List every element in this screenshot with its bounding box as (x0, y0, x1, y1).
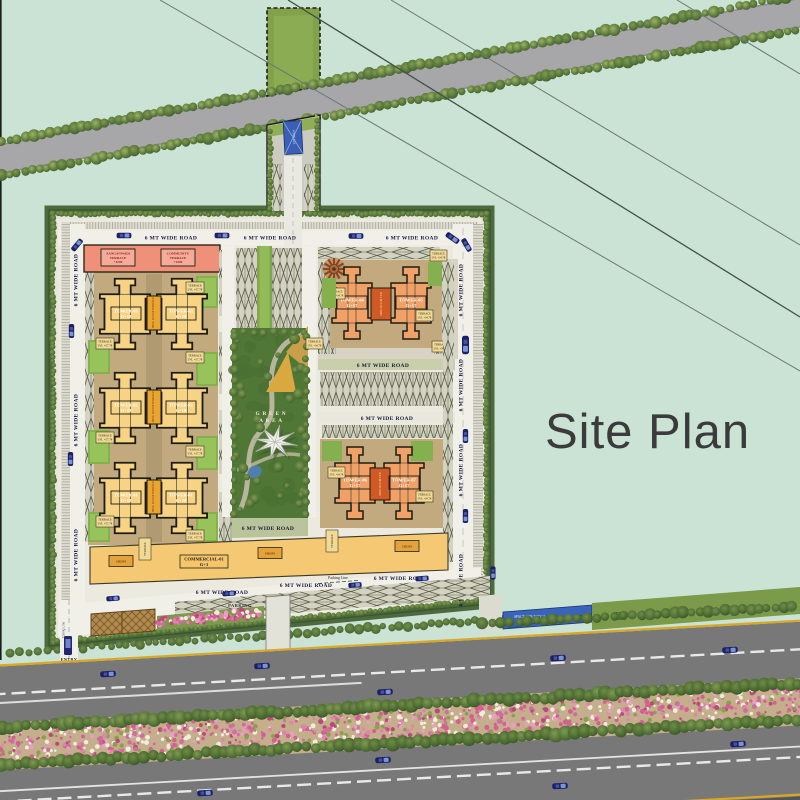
svg-text:MISC ROOM TERRACE: MISC ROOM TERRACE (151, 391, 155, 423)
svg-text:LVL +57.78: LVL +57.78 (188, 452, 203, 456)
svg-text:6 MT WIDE ROAD: 6 MT WIDE ROAD (74, 529, 80, 582)
svg-text:TERRACE: TERRACE (330, 470, 343, 473)
svg-text:6 MT WIDE ROAD: 6 MT WIDE ROAD (196, 590, 249, 596)
svg-text:6 MT WIDE ROAD: 6 MT WIDE ROAD (386, 236, 439, 242)
svg-text:+4200: +4200 (174, 260, 183, 264)
svg-text:SHOPS: SHOPS (265, 552, 276, 556)
svg-text:+4200: +4200 (114, 260, 123, 264)
svg-text:6 MT WIDE ROAD: 6 MT WIDE ROAD (74, 254, 80, 307)
svg-text:G+18: G+18 (176, 408, 187, 413)
svg-text:G+18: G+18 (121, 498, 132, 503)
svg-text:6 MT WIDE ROAD: 6 MT WIDE ROAD (459, 444, 465, 497)
svg-text:TOWER-03: TOWER-03 (114, 309, 138, 314)
svg-text:LVL +57.78: LVL +57.78 (188, 358, 203, 362)
svg-text:TOWER-03: TOWER-03 (169, 309, 193, 314)
svg-text:LVL +34.78: LVL +34.78 (418, 317, 432, 320)
svg-text:TOWER-05: TOWER-05 (399, 298, 423, 303)
svg-text:TOWER-02: TOWER-02 (114, 403, 138, 408)
svg-text:TOWER-06: TOWER-06 (343, 478, 367, 483)
svg-text:LVL +34.78: LVL +34.78 (418, 498, 432, 501)
svg-text:6 MT WIDE ROAD: 6 MT WIDE ROAD (145, 236, 198, 242)
svg-text:6 MT WIDE ROAD: 6 MT WIDE ROAD (459, 359, 465, 412)
svg-text:TERRACE: TERRACE (418, 494, 431, 497)
svg-text:TOWER-01: TOWER-01 (169, 493, 193, 498)
svg-text:LVL +34.78: LVL +34.78 (308, 345, 322, 348)
svg-text:LVL +57.78: LVL +57.78 (98, 344, 113, 348)
svg-text:LVL +34.78: LVL +34.78 (432, 257, 446, 260)
svg-text:G+18: G+18 (121, 408, 132, 413)
svg-text:TERRACE: TERRACE (432, 253, 445, 256)
svg-text:MISC ROOM TERRACE: MISC ROOM TERRACE (151, 297, 155, 329)
svg-text:G+17: G+17 (347, 303, 358, 308)
svg-text:6 MT WIDE ROAD: 6 MT WIDE ROAD (280, 583, 333, 589)
svg-text:SHOPS: SHOPS (402, 545, 413, 549)
svg-text:Site Plan: Site Plan (545, 405, 750, 459)
svg-text:G R E E N: G R E E N (256, 411, 287, 417)
svg-text:LVL +57.78: LVL +57.78 (98, 522, 113, 526)
svg-text:SHOPS: SHOPS (116, 560, 127, 564)
svg-text:TOWER-01: TOWER-01 (114, 493, 138, 498)
svg-text:G+17: G+17 (399, 483, 410, 488)
svg-text:Parking Line: Parking Line (328, 576, 348, 580)
svg-text:LVL +57.78: LVL +57.78 (188, 536, 203, 540)
svg-text:TERRACE: TERRACE (308, 341, 321, 344)
svg-text:TERRACE: TERRACE (330, 534, 334, 548)
svg-text:G+18: G+18 (176, 498, 187, 503)
svg-text:COMMERCIAL-01: COMMERCIAL-01 (184, 557, 224, 562)
svg-text:6 MT WIDE ROAD: 6 MT WIDE ROAD (357, 363, 410, 369)
svg-text:G+17: G+17 (350, 483, 361, 488)
svg-text:TERRACE: TERRACE (143, 542, 147, 556)
svg-text:LVL +34.78: LVL +34.78 (330, 474, 344, 477)
svg-text:LVL +57.78: LVL +57.78 (188, 288, 203, 292)
svg-text:6 MT WIDE ROAD: 6 MT WIDE ROAD (244, 236, 297, 242)
svg-text:G+17: G+17 (406, 303, 417, 308)
svg-text:TOWER-07: TOWER-07 (392, 478, 416, 483)
svg-text:MISC ROOM TERRACE: MISC ROOM TERRACE (151, 481, 155, 513)
svg-text:MISC ROOM TER: MISC ROOM TER (379, 292, 383, 315)
svg-text:A R E A: A R E A (259, 418, 283, 424)
svg-text:6 MT WIDE ROAD: 6 MT WIDE ROAD (242, 526, 295, 532)
svg-text:G+18: G+18 (176, 314, 187, 319)
svg-text:6 MT WIDE ROAD: 6 MT WIDE ROAD (459, 264, 465, 317)
svg-text:STP AREA: STP AREA (292, 129, 297, 145)
svg-text:TOWER-02: TOWER-02 (169, 403, 193, 408)
svg-text:PARKING: PARKING (228, 603, 252, 608)
svg-text:6 MT WIDE ROAD: 6 MT WIDE ROAD (74, 394, 80, 447)
svg-text:G+18: G+18 (121, 314, 132, 319)
svg-text:LVL +57.78: LVL +57.78 (98, 438, 113, 442)
svg-text:6 MT WIDE ROAD: 6 MT WIDE ROAD (361, 416, 414, 422)
svg-text:Zoning Line: Zoning Line (62, 621, 66, 638)
svg-text:G+1: G+1 (200, 562, 209, 567)
svg-text:MISC ROOM TER: MISC ROOM TER (378, 472, 382, 495)
svg-text:TERRACE: TERRACE (418, 313, 431, 316)
